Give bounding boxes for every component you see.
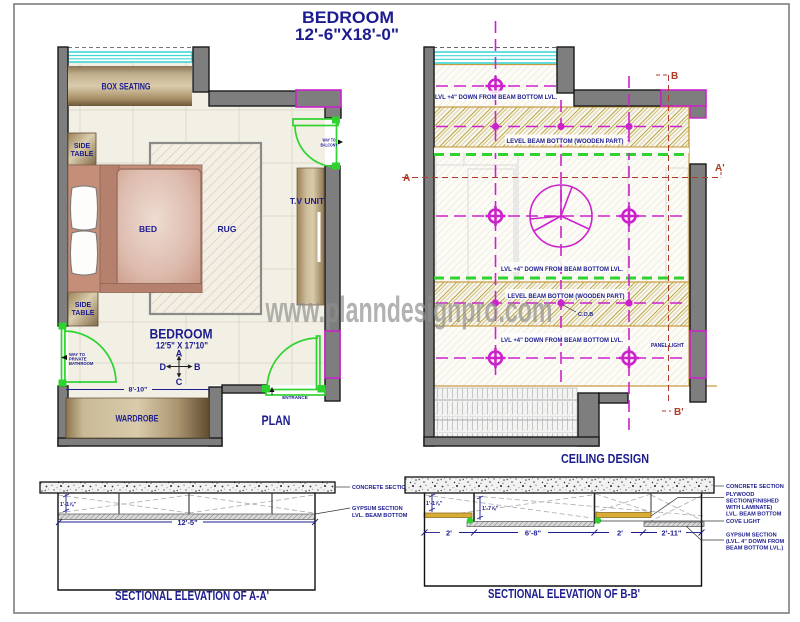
svg-text:CONCRETE SECTION: CONCRETE SECTION — [352, 485, 410, 491]
svg-text:6'-8": 6'-8" — [525, 529, 542, 538]
svg-text:LEVEL BEAM BOTTOM (WOODEN PART: LEVEL BEAM BOTTOM (WOODEN PART) — [507, 138, 624, 145]
svg-text:2': 2' — [446, 529, 452, 538]
svg-text:COVE LIGHT: COVE LIGHT — [726, 519, 761, 525]
svg-text:LVL +4" DOWN FROM BEAM BOTTOM: LVL +4" DOWN FROM BEAM BOTTOM LVL. — [501, 266, 623, 273]
svg-text:1'-1⅞": 1'-1⅞" — [426, 501, 443, 507]
svg-text:PANEL LIGHT: PANEL LIGHT — [651, 343, 684, 349]
svg-text:2'-11": 2'-11" — [662, 529, 682, 538]
svg-text:LVL. BEAM BOTTOM: LVL. BEAM BOTTOM — [352, 513, 408, 519]
svg-text:C.O.B: C.O.B — [578, 312, 593, 318]
svg-text:PLYWOOD: PLYWOOD — [726, 492, 754, 498]
svg-text:TABLE: TABLE — [72, 310, 95, 317]
svg-text:(LVL. 4" DOWN FROM: (LVL. 4" DOWN FROM — [726, 539, 785, 545]
svg-text:B: B — [194, 362, 201, 372]
svg-text:ENTRANCE: ENTRANCE — [282, 395, 308, 400]
svg-text:BEDROOM: BEDROOM — [150, 327, 213, 342]
svg-text:GYPSUM SECTION: GYPSUM SECTION — [352, 506, 403, 512]
svg-text:1'-7⅞": 1'-7⅞" — [482, 506, 499, 512]
svg-text:B': B' — [674, 407, 684, 418]
svg-text:T.V UNIT: T.V UNIT — [290, 196, 325, 206]
svg-text:2': 2' — [617, 529, 623, 538]
svg-text:PLAN: PLAN — [262, 412, 291, 428]
svg-text:A': A' — [715, 163, 725, 174]
svg-text:TABLE: TABLE — [71, 151, 94, 158]
svg-text:SIDE: SIDE — [74, 143, 91, 150]
svg-text:BALCONY: BALCONY — [321, 143, 338, 148]
svg-text:A: A — [403, 173, 410, 184]
svg-text:LVL +4" DOWN FROM BEAM BOTTOM: LVL +4" DOWN FROM BEAM BOTTOM LVL. — [501, 337, 623, 344]
svg-text:12'-6"X18'-0": 12'-6"X18'-0" — [295, 25, 399, 44]
svg-text:WITH LAMINATE): WITH LAMINATE) — [726, 505, 772, 511]
svg-text:BEAM BOTTOM LVL.): BEAM BOTTOM LVL.) — [726, 546, 783, 552]
svg-text:BATHROOM: BATHROOM — [69, 361, 94, 366]
svg-text:SECTIONAL ELEVATION OF B-B': SECTIONAL ELEVATION OF B-B' — [488, 586, 640, 601]
svg-text:LVL. BEAM BOTTOM: LVL. BEAM BOTTOM — [726, 512, 782, 518]
svg-text:C: C — [176, 377, 183, 387]
svg-text:www.planndesignpro.com: www.planndesignpro.com — [265, 289, 553, 330]
svg-text:CONCRETE SECTION: CONCRETE SECTION — [726, 484, 784, 490]
svg-text:WARDROBE: WARDROBE — [116, 414, 159, 424]
svg-text:BED: BED — [139, 224, 157, 234]
svg-text:1'-1⅞": 1'-1⅞" — [60, 502, 77, 508]
svg-text:LVL +4" DOWN FROM BEAM BOTTOM: LVL +4" DOWN FROM BEAM BOTTOM LVL. — [435, 94, 557, 101]
svg-text:D: D — [160, 362, 167, 372]
svg-text:SECTION(FINISHED: SECTION(FINISHED — [726, 499, 779, 505]
svg-text:GYPSUM SECTION: GYPSUM SECTION — [726, 533, 777, 539]
svg-text:CEILING DESIGN: CEILING DESIGN — [561, 451, 649, 466]
svg-text:8'-10": 8'-10" — [129, 388, 148, 394]
svg-text:12'-5": 12'-5" — [177, 518, 198, 527]
svg-text:SECTIONAL ELEVATION OF A-A': SECTIONAL ELEVATION OF A-A' — [115, 588, 269, 603]
svg-text:BOX SEATING: BOX SEATING — [102, 82, 151, 93]
svg-text:B: B — [671, 71, 678, 82]
svg-text:SIDE: SIDE — [75, 302, 92, 309]
svg-text:12'5" X 17'10": 12'5" X 17'10" — [156, 341, 208, 351]
svg-text:RUG: RUG — [218, 224, 237, 234]
